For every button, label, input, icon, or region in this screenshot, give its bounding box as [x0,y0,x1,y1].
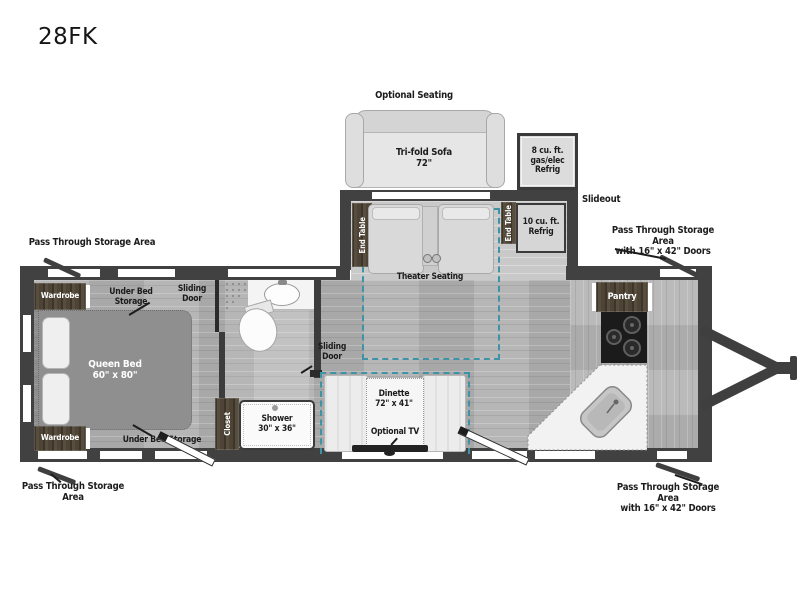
cabinet-edge [86,285,90,308]
sofa-armrest-left [345,113,364,188]
optional-seating-label: Optional Seating [352,91,476,102]
window [23,315,31,352]
tv-mount [384,450,395,456]
bath-wall-right [314,280,321,378]
wardrobe-top: Wardrobe [34,283,86,310]
model-title: 28FK [38,24,98,50]
refrigerator-8cuft: 8 cu. ft. gas/elec Refrig [517,133,578,190]
trailer-hitch [690,320,800,420]
refrigerator-10cuft-label: 10 cu. ft. Refrig [523,218,560,237]
window [118,269,175,277]
theater-seat-left [368,204,424,274]
pass-through-top-right-label: Pass Through Storage Area with 16" x 42"… [608,226,718,258]
pillow [42,317,70,369]
slideout-label: Slideout [582,195,628,206]
window [23,385,31,422]
theater-seating-label: Theater Seating [380,273,480,283]
slideout-wall-left [340,190,351,270]
end-table-right: End Table [501,202,516,244]
shower-head [272,405,278,411]
burner [623,339,641,357]
slideout-wall-right [567,190,578,270]
shower-label: Shower 30" x 36" [258,415,296,434]
pillow [42,373,70,425]
window [228,269,336,277]
cupholder [423,254,432,263]
refrigerator-10cuft: 10 cu. ft. Refrig [516,203,566,253]
wardrobe-bottom: Wardrobe [34,426,86,451]
closet: Closet [215,398,239,450]
closet-label: Closet [223,412,232,436]
end-table-label: End Table [504,205,513,242]
dinette-bench-left [324,375,368,452]
sofa-armrest-right [486,113,505,188]
theater-seat-right [438,204,494,274]
dinette-bench-right [422,375,466,452]
wardrobe-label: Wardrobe [41,292,79,301]
pantry-label: Pantry [608,292,637,302]
pantry: Pantry [596,282,648,312]
cabinet-edge [648,283,652,311]
refrigerator-8cuft-label: 8 cu. ft. gas/elec Refrig [531,147,565,176]
burner [623,316,641,334]
under-bed-storage-top-label: Under Bed Storage [92,288,170,307]
kitchen-faucet [614,400,619,405]
dinette-label: Dinette 72" x 41" [364,390,424,409]
cabinet-edge [86,428,90,449]
cupholder [432,254,441,263]
floorplan-canvas: 28FK Queen Bed 60" x 80" Wardrobe Wardro… [0,0,800,600]
window [38,451,87,459]
trifold-sofa-label: Tri-fold Sofa 72" [365,148,483,169]
pass-through-bottom-left-label: Pass Through Storage Area [14,482,132,503]
sliding-door-bedroom-label: Sliding Door [170,285,214,304]
pass-through-flap [655,462,700,482]
window [100,451,142,459]
slideout-window [372,192,490,199]
bath-faucet [278,280,287,285]
pass-through-bottom-right-label: Pass Through Storage Area with 16" x 42"… [612,483,724,515]
sliding-door-track [215,280,219,332]
pass-through-top-left-label: Pass Through Storage Area [16,238,168,249]
sliding-door-hall-label: Sliding Door [306,343,358,362]
end-table-label: End Table [358,217,367,254]
wardrobe-label: Wardrobe [41,434,79,443]
wall-left [20,266,34,462]
burner [606,329,622,345]
queen-bed-label: Queen Bed 60" x 80" [88,359,141,381]
optional-tv-label: Optional TV [366,428,424,438]
